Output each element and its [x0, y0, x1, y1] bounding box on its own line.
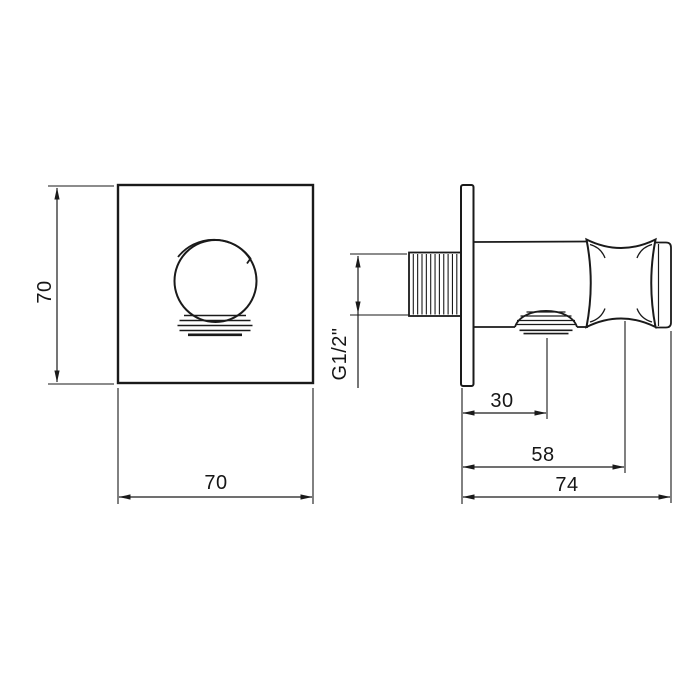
handset-holder	[587, 240, 672, 328]
dim-label-30: 30	[490, 390, 513, 412]
dim-label-thread-size: G1/2"	[329, 328, 351, 381]
dim-label-front-height: 70	[34, 280, 56, 303]
dim-label-74: 74	[555, 474, 578, 496]
dome-lip-lines	[520, 330, 573, 333]
holder-right-face	[655, 243, 671, 328]
front-view	[118, 185, 313, 383]
technical-drawing-canvas: 70 70 G1/2" 30 58 74	[0, 0, 700, 700]
side-view	[409, 185, 671, 386]
wall-plate	[461, 185, 474, 386]
holder-cushion	[587, 240, 656, 328]
hose-nut-dome	[515, 311, 577, 334]
thread-pipe	[409, 253, 461, 317]
dim-label-58: 58	[531, 444, 554, 466]
dim-label-front-width: 70	[204, 472, 227, 494]
